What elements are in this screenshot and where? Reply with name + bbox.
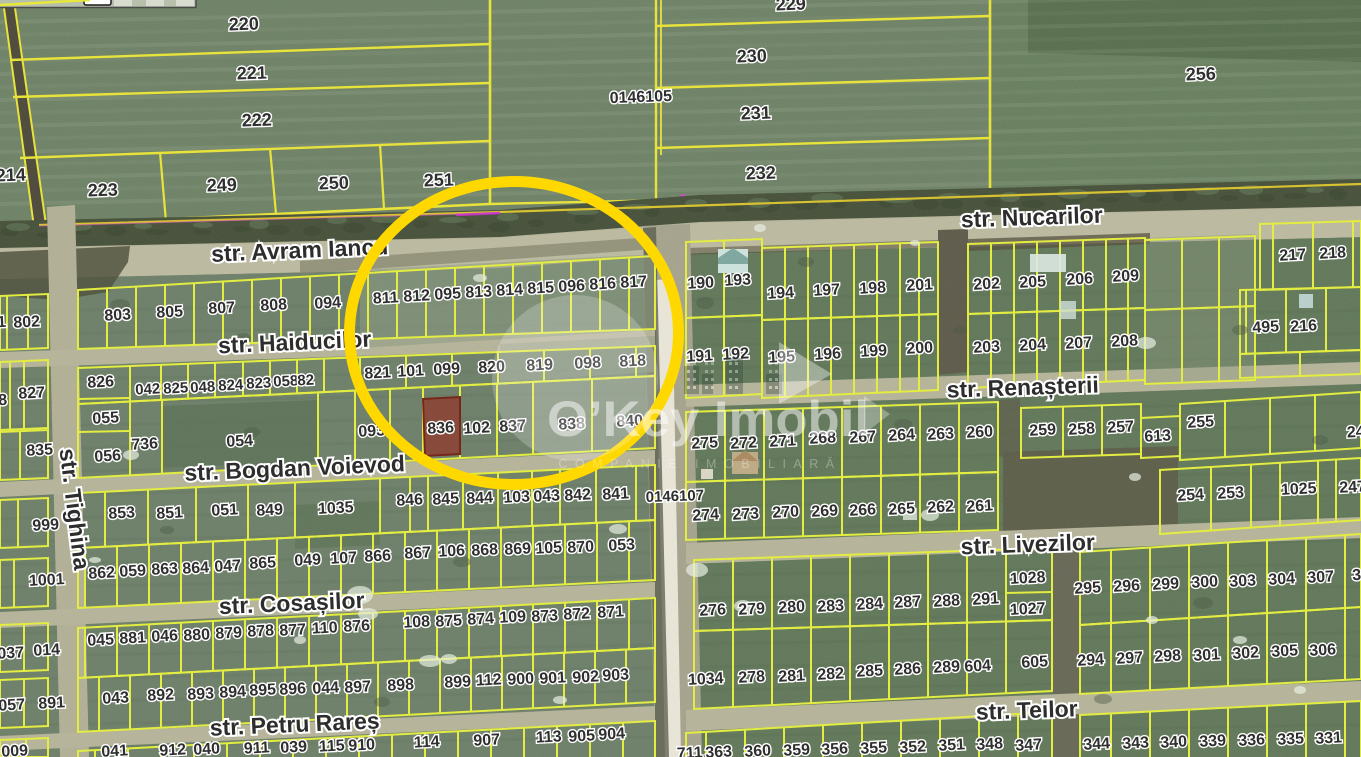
svg-text:str. Nucarilor: str. Nucarilor <box>960 202 1103 233</box>
svg-text:196: 196 <box>814 345 842 363</box>
svg-text:229: 229 <box>775 0 806 15</box>
svg-text:262: 262 <box>927 498 955 516</box>
svg-text:711: 711 <box>676 744 703 757</box>
svg-text:871: 871 <box>597 603 625 621</box>
svg-text:113: 113 <box>535 728 562 746</box>
svg-text:865: 865 <box>249 554 277 572</box>
svg-text:099: 099 <box>433 360 461 378</box>
svg-text:900: 900 <box>507 670 535 688</box>
svg-text:051: 051 <box>211 501 239 519</box>
svg-text:905: 905 <box>568 727 596 745</box>
svg-text:049: 049 <box>294 551 322 569</box>
svg-text:816: 816 <box>589 275 617 293</box>
svg-text:256: 256 <box>1185 63 1216 84</box>
svg-text:274: 274 <box>692 506 720 524</box>
svg-text:870: 870 <box>567 538 595 556</box>
svg-text:893: 893 <box>187 685 215 703</box>
svg-text:096: 096 <box>558 277 586 295</box>
svg-text:302: 302 <box>1232 644 1260 662</box>
svg-text:095: 095 <box>434 285 462 303</box>
svg-text:114: 114 <box>413 733 440 751</box>
svg-text:041: 041 <box>101 742 129 757</box>
svg-text:288: 288 <box>933 592 961 610</box>
svg-text:110: 110 <box>311 619 338 637</box>
svg-text:335: 335 <box>1277 730 1305 748</box>
svg-text:303: 303 <box>1229 572 1257 590</box>
svg-text:284: 284 <box>856 595 884 613</box>
svg-text:200: 200 <box>906 339 934 357</box>
svg-text:206: 206 <box>1066 270 1094 288</box>
svg-text:815: 815 <box>527 279 555 297</box>
svg-text:910: 910 <box>348 736 376 754</box>
svg-text:605: 605 <box>1021 653 1049 671</box>
svg-text:851: 851 <box>156 504 184 522</box>
svg-text:895: 895 <box>249 681 277 699</box>
svg-text:047: 047 <box>214 557 242 575</box>
svg-text:1: 1 <box>0 314 7 331</box>
svg-text:347: 347 <box>1015 736 1043 754</box>
svg-text:907: 907 <box>473 731 501 749</box>
svg-text:103: 103 <box>503 488 531 506</box>
svg-text:355: 355 <box>860 739 888 757</box>
svg-text:259: 259 <box>1029 421 1057 439</box>
svg-text:869: 869 <box>504 540 532 558</box>
svg-text:209: 209 <box>1112 267 1140 285</box>
svg-text:043: 043 <box>102 689 130 707</box>
svg-text:881: 881 <box>119 629 147 647</box>
svg-text:054: 054 <box>226 432 254 450</box>
svg-text:873: 873 <box>531 607 559 625</box>
svg-text:1027: 1027 <box>1010 600 1047 619</box>
svg-text:043: 043 <box>533 487 561 505</box>
svg-text:191: 191 <box>686 347 714 365</box>
svg-text:835: 835 <box>26 441 54 459</box>
svg-text:876: 876 <box>343 617 371 635</box>
svg-text:842: 842 <box>564 486 592 504</box>
svg-text:359: 359 <box>783 741 811 757</box>
svg-text:826: 826 <box>87 373 115 391</box>
svg-text:821: 821 <box>364 364 392 382</box>
svg-text:053: 053 <box>608 536 636 554</box>
svg-text:199: 199 <box>860 342 888 360</box>
svg-text:059: 059 <box>119 562 147 580</box>
svg-text:037: 037 <box>0 644 25 662</box>
svg-text:846: 846 <box>396 491 424 509</box>
svg-text:999: 999 <box>32 516 60 534</box>
svg-text:82: 82 <box>297 372 315 390</box>
svg-text:827: 827 <box>18 384 46 402</box>
svg-text:301: 301 <box>1193 646 1221 664</box>
svg-text:803: 803 <box>104 306 132 324</box>
svg-text:247: 247 <box>1339 478 1361 496</box>
svg-text:879: 879 <box>215 624 243 642</box>
svg-text:220: 220 <box>228 13 259 34</box>
svg-text:O’Key Imobil: O’Key Imobil <box>547 391 869 447</box>
svg-text:363: 363 <box>705 743 733 757</box>
svg-text:898: 898 <box>387 676 415 694</box>
svg-text:298: 298 <box>1154 647 1182 665</box>
svg-text:str. Livezilor: str. Livezilor <box>960 529 1095 560</box>
svg-text:812: 812 <box>403 287 431 305</box>
svg-text:24: 24 <box>1346 424 1361 442</box>
svg-text:891: 891 <box>38 694 66 712</box>
svg-text:3: 3 <box>1352 567 1361 584</box>
svg-text:253: 253 <box>1217 484 1245 502</box>
svg-text:736: 736 <box>131 435 159 453</box>
svg-text:295: 295 <box>1074 579 1102 597</box>
svg-text:1034: 1034 <box>688 670 725 689</box>
svg-text:266: 266 <box>849 501 877 519</box>
svg-text:232: 232 <box>745 162 776 183</box>
svg-text:201: 201 <box>906 276 934 294</box>
svg-text:102: 102 <box>463 419 491 437</box>
svg-text:853: 853 <box>108 504 136 522</box>
svg-text:269: 269 <box>811 502 839 520</box>
svg-text:351: 351 <box>938 736 966 754</box>
svg-text:849: 849 <box>256 501 284 519</box>
svg-text:223: 223 <box>87 179 118 200</box>
svg-text:896: 896 <box>279 680 307 698</box>
svg-text:877: 877 <box>279 621 307 639</box>
svg-text:203: 203 <box>973 338 1001 356</box>
svg-text:258: 258 <box>1068 420 1096 438</box>
svg-text:107: 107 <box>330 549 358 567</box>
svg-text:356: 356 <box>821 740 849 757</box>
svg-text:902: 902 <box>572 668 600 686</box>
svg-text:811: 811 <box>372 289 399 307</box>
svg-text:289: 289 <box>933 658 961 676</box>
svg-text:0146107: 0146107 <box>645 487 704 506</box>
svg-text:101: 101 <box>397 362 425 380</box>
svg-text:202: 202 <box>973 275 1001 293</box>
svg-text:901: 901 <box>539 669 567 687</box>
svg-text:868: 868 <box>471 541 499 559</box>
svg-text:264: 264 <box>888 426 916 444</box>
svg-text:046: 046 <box>151 627 179 645</box>
svg-text:257: 257 <box>1107 418 1135 436</box>
svg-text:845: 845 <box>432 490 460 508</box>
svg-text:336: 336 <box>1238 731 1266 749</box>
svg-text:807: 807 <box>208 299 236 317</box>
svg-text:875: 875 <box>435 612 463 630</box>
svg-text:1001: 1001 <box>29 571 66 590</box>
svg-text:352: 352 <box>899 738 927 756</box>
svg-text:864: 864 <box>182 559 210 577</box>
svg-text:340: 340 <box>1160 733 1188 751</box>
svg-text:283: 283 <box>817 597 845 615</box>
svg-text:251: 251 <box>423 169 454 190</box>
svg-text:8: 8 <box>0 392 8 409</box>
svg-text:817: 817 <box>620 273 648 291</box>
svg-text:287: 287 <box>894 593 922 611</box>
svg-text:COMPANIE IMOBILIARĂ: COMPANIE IMOBILIARĂ <box>558 456 841 471</box>
svg-text:265: 265 <box>888 500 916 518</box>
svg-text:249: 249 <box>206 174 237 195</box>
svg-text:304: 304 <box>1268 570 1296 588</box>
svg-text:231: 231 <box>740 102 771 123</box>
svg-text:198: 198 <box>859 279 887 297</box>
svg-text:190: 190 <box>687 274 715 292</box>
svg-text:014: 014 <box>33 641 61 659</box>
svg-text:867: 867 <box>404 544 432 562</box>
svg-text:296: 296 <box>1113 577 1141 595</box>
svg-text:348: 348 <box>976 735 1004 753</box>
svg-text:039: 039 <box>280 738 308 756</box>
svg-text:874: 874 <box>467 610 495 628</box>
svg-text:872: 872 <box>563 605 591 623</box>
svg-text:214: 214 <box>0 164 26 185</box>
svg-text:115: 115 <box>318 737 345 755</box>
svg-text:094: 094 <box>314 294 342 312</box>
svg-text:055: 055 <box>92 409 120 427</box>
svg-text:193: 193 <box>724 271 752 289</box>
svg-text:844: 844 <box>466 489 494 507</box>
svg-text:109: 109 <box>499 608 527 626</box>
svg-text:863: 863 <box>151 560 179 578</box>
svg-text:058: 058 <box>273 372 299 390</box>
svg-text:814: 814 <box>496 281 524 299</box>
svg-text:230: 230 <box>736 45 767 66</box>
svg-text:108: 108 <box>403 613 431 631</box>
svg-text:824: 824 <box>218 376 245 394</box>
svg-text:894: 894 <box>219 683 247 701</box>
svg-text:255: 255 <box>1187 413 1215 431</box>
svg-text:306: 306 <box>1309 641 1337 659</box>
svg-text:286: 286 <box>894 660 922 678</box>
svg-text:613: 613 <box>1144 427 1172 445</box>
svg-text:056: 056 <box>94 447 122 465</box>
svg-text:360: 360 <box>744 742 772 757</box>
svg-text:294: 294 <box>1077 651 1105 669</box>
svg-text:263: 263 <box>927 425 955 443</box>
svg-text:307: 307 <box>1307 568 1335 586</box>
svg-text:205: 205 <box>1019 273 1047 291</box>
svg-text:273: 273 <box>732 505 760 523</box>
svg-text:260: 260 <box>966 423 994 441</box>
svg-text:904: 904 <box>598 725 626 743</box>
svg-text:344: 344 <box>1083 735 1111 753</box>
svg-text:197: 197 <box>813 281 841 299</box>
svg-text:276: 276 <box>699 601 727 619</box>
svg-text:903: 903 <box>602 666 630 684</box>
svg-text:285: 285 <box>856 662 884 680</box>
svg-text:299: 299 <box>1152 575 1180 593</box>
svg-text:823: 823 <box>246 374 272 392</box>
svg-text:221: 221 <box>236 62 267 83</box>
svg-text:281: 281 <box>778 667 806 685</box>
svg-text:305: 305 <box>1271 642 1299 660</box>
svg-text:009: 009 <box>1 742 29 757</box>
svg-text:899: 899 <box>444 673 472 691</box>
svg-text:048: 048 <box>190 378 216 396</box>
svg-text:280: 280 <box>778 598 806 616</box>
svg-text:044: 044 <box>312 679 340 697</box>
svg-text:808: 808 <box>260 296 288 314</box>
svg-text:841: 841 <box>602 485 630 503</box>
svg-text:112: 112 <box>475 671 502 689</box>
svg-text:057: 057 <box>0 696 26 714</box>
svg-text:040: 040 <box>193 740 221 757</box>
svg-text:1025: 1025 <box>1281 480 1318 499</box>
svg-text:254: 254 <box>1177 486 1205 504</box>
svg-text:880: 880 <box>183 626 211 644</box>
svg-text:1028: 1028 <box>1010 569 1047 588</box>
svg-text:204: 204 <box>1019 336 1047 354</box>
svg-text:279: 279 <box>738 600 766 618</box>
svg-text:331: 331 <box>1315 729 1343 747</box>
svg-text:str. Teilor: str. Teilor <box>975 695 1078 725</box>
svg-text:897: 897 <box>344 678 372 696</box>
svg-text:045: 045 <box>87 631 115 649</box>
svg-text:222: 222 <box>241 109 272 130</box>
svg-text:207: 207 <box>1065 334 1093 352</box>
svg-text:297: 297 <box>1116 649 1144 667</box>
svg-text:866: 866 <box>364 547 392 565</box>
svg-text:805: 805 <box>156 303 184 321</box>
svg-text:218: 218 <box>1319 244 1347 262</box>
svg-text:270: 270 <box>772 503 800 521</box>
svg-text:217: 217 <box>1279 246 1307 264</box>
svg-text:194: 194 <box>767 284 795 302</box>
svg-text:0146105: 0146105 <box>609 88 672 107</box>
svg-text:278: 278 <box>738 668 766 686</box>
svg-text:282: 282 <box>817 665 845 683</box>
svg-text:291: 291 <box>972 590 1000 608</box>
svg-text:604: 604 <box>964 657 992 675</box>
svg-text:802: 802 <box>13 313 41 331</box>
svg-text:892: 892 <box>147 686 175 704</box>
svg-text:911: 911 <box>243 739 270 757</box>
svg-text:343: 343 <box>1122 734 1150 752</box>
svg-text:105: 105 <box>535 539 563 557</box>
svg-text:495: 495 <box>1252 318 1280 336</box>
svg-text:1035: 1035 <box>318 499 355 518</box>
svg-text:912: 912 <box>159 741 187 757</box>
svg-text:813: 813 <box>465 283 493 301</box>
svg-text:339: 339 <box>1199 732 1227 750</box>
svg-text:836: 836 <box>427 419 455 437</box>
svg-text:208: 208 <box>1111 332 1139 350</box>
svg-text:825: 825 <box>163 379 189 397</box>
svg-text:106: 106 <box>438 542 466 560</box>
svg-text:261: 261 <box>966 497 994 515</box>
svg-text:878: 878 <box>247 622 275 640</box>
svg-text:216: 216 <box>1290 317 1318 335</box>
svg-text:300: 300 <box>1191 573 1219 591</box>
svg-text:042: 042 <box>135 380 161 398</box>
svg-text:250: 250 <box>318 172 349 193</box>
